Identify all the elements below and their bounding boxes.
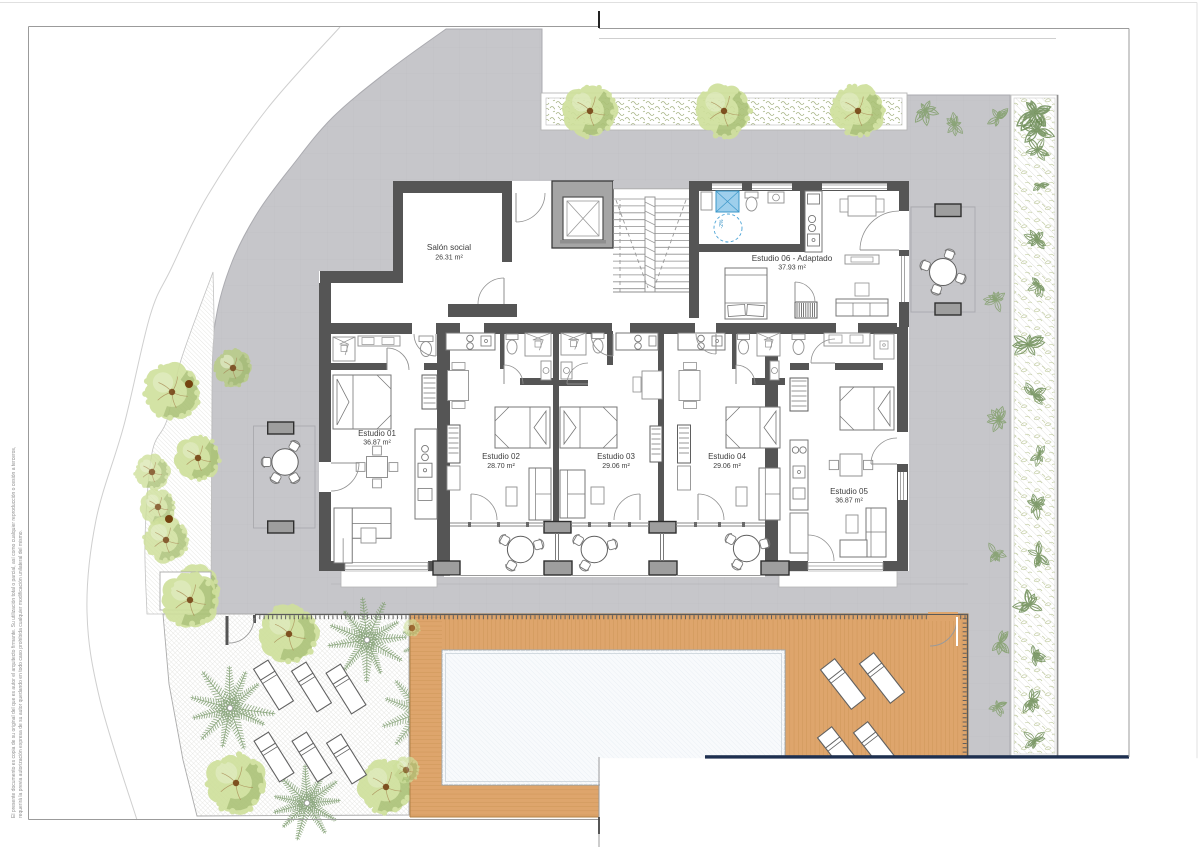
svg-text:Estudio 01: Estudio 01 [358,429,396,438]
svg-text:29.06 m²: 29.06 m² [713,463,741,470]
svg-text:36.87 m²: 36.87 m² [363,440,391,447]
svg-text:-2%: -2% [719,219,725,228]
svg-text:28.70 m²: 28.70 m² [487,463,515,470]
svg-text:36.87 m²: 36.87 m² [835,498,863,505]
svg-text:26.31 m²: 26.31 m² [435,255,463,262]
svg-text:Estudio 06 - Adaptado: Estudio 06 - Adaptado [752,254,833,263]
svg-text:Estudio 05: Estudio 05 [830,487,868,496]
svg-text:37.93 m²: 37.93 m² [778,265,806,272]
svg-text:El presente documento es copia: El presente documento es copia de su ori… [11,447,17,818]
svg-text:requerirá la previa autorizaci: requerirá la previa autorización expresa… [18,530,24,818]
svg-text:29.06 m²: 29.06 m² [602,463,630,470]
svg-text:Estudio 03: Estudio 03 [597,452,635,461]
svg-text:Estudio 02: Estudio 02 [482,452,520,461]
svg-text:Salón social: Salón social [427,243,471,252]
svg-text:Estudio 04: Estudio 04 [708,452,746,461]
